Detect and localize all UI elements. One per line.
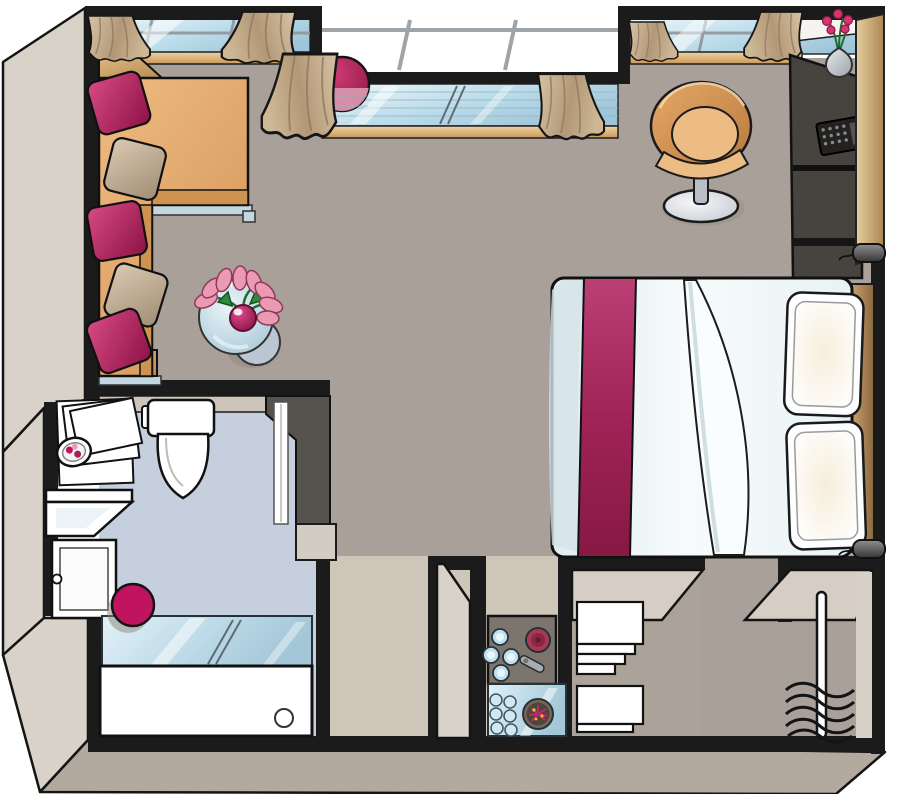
sofa-base-metal bbox=[99, 376, 161, 385]
wall-corner-step bbox=[296, 524, 336, 560]
entrance-door bbox=[856, 14, 884, 264]
chair-cushion bbox=[672, 107, 738, 161]
bathtub-drain bbox=[275, 709, 293, 727]
bathtub-area bbox=[100, 616, 312, 736]
balcony-recess bbox=[322, 18, 618, 74]
pillow-magenta bbox=[86, 200, 149, 263]
tub-chair bbox=[651, 82, 751, 226]
towel-stack bbox=[577, 602, 643, 644]
wall-kitchen-partition bbox=[470, 556, 486, 740]
pillow-beige bbox=[102, 136, 167, 201]
wardrobe-right-face bbox=[856, 572, 872, 738]
kitchenette bbox=[483, 616, 566, 736]
storage-cabinet bbox=[52, 540, 116, 618]
small-glasses bbox=[490, 694, 517, 736]
lamp bbox=[853, 244, 885, 262]
floor-plan bbox=[0, 0, 900, 794]
double-bed bbox=[549, 244, 885, 558]
wall-bottom bbox=[88, 736, 885, 752]
cabinet-handle bbox=[53, 575, 62, 584]
bed-runner bbox=[578, 278, 636, 557]
toilet-tank bbox=[148, 400, 214, 436]
towel-stack bbox=[577, 686, 643, 724]
lamp bbox=[853, 540, 885, 558]
vase bbox=[230, 305, 256, 331]
hotplate bbox=[526, 628, 550, 652]
flower-bowl bbox=[523, 699, 553, 729]
floor-plan-svg bbox=[0, 0, 900, 794]
